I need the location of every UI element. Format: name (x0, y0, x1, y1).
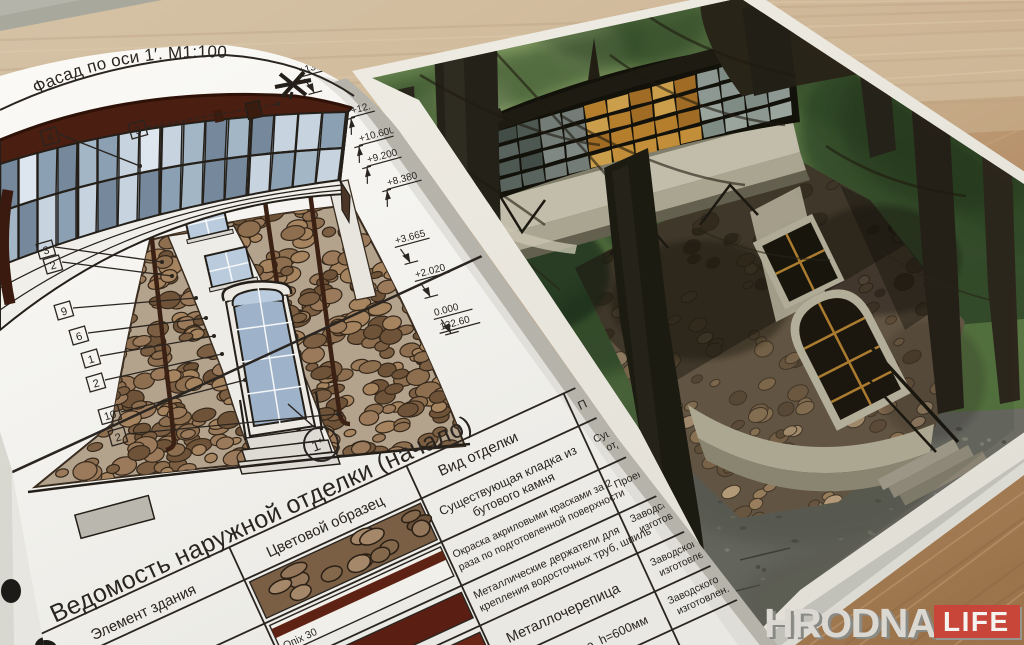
svg-text:HRODNA: HRODNA (764, 600, 936, 645)
svg-text:LIFE: LIFE (943, 606, 1010, 637)
